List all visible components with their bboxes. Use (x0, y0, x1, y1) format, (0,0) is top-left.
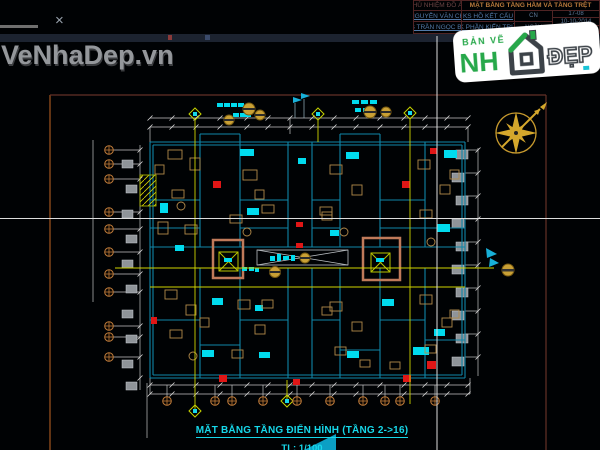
logo-tm-mark (583, 66, 589, 70)
compass-rose-icon (495, 102, 547, 154)
stair-hatch (140, 175, 156, 206)
caption-scale: TL: 1/100 (281, 443, 322, 450)
cyan-fixtures (160, 100, 457, 358)
logo-nha: NH (459, 46, 500, 79)
cad-application-window: × (0, 0, 600, 450)
site-logo[interactable]: BẢN VẼ NH ĐẸP (452, 21, 600, 83)
logo-dep: ĐẸP (547, 41, 594, 69)
drawing-caption: MẶT BẰNG TẦNG ĐIỂN HÌNH (TẦNG 2->16) TL:… (172, 420, 432, 450)
dimension-lines (93, 118, 478, 438)
caption-title: MẶT BẰNG TẦNG ĐIỂN HÌNH (TẦNG 2->16) (196, 425, 408, 438)
section-marker-icon (486, 248, 514, 276)
red-columns (151, 148, 437, 385)
callout-circles (224, 103, 391, 278)
watermark-text: VeNhaDep.vn (1, 40, 174, 71)
survey-flags-icon (293, 93, 310, 118)
